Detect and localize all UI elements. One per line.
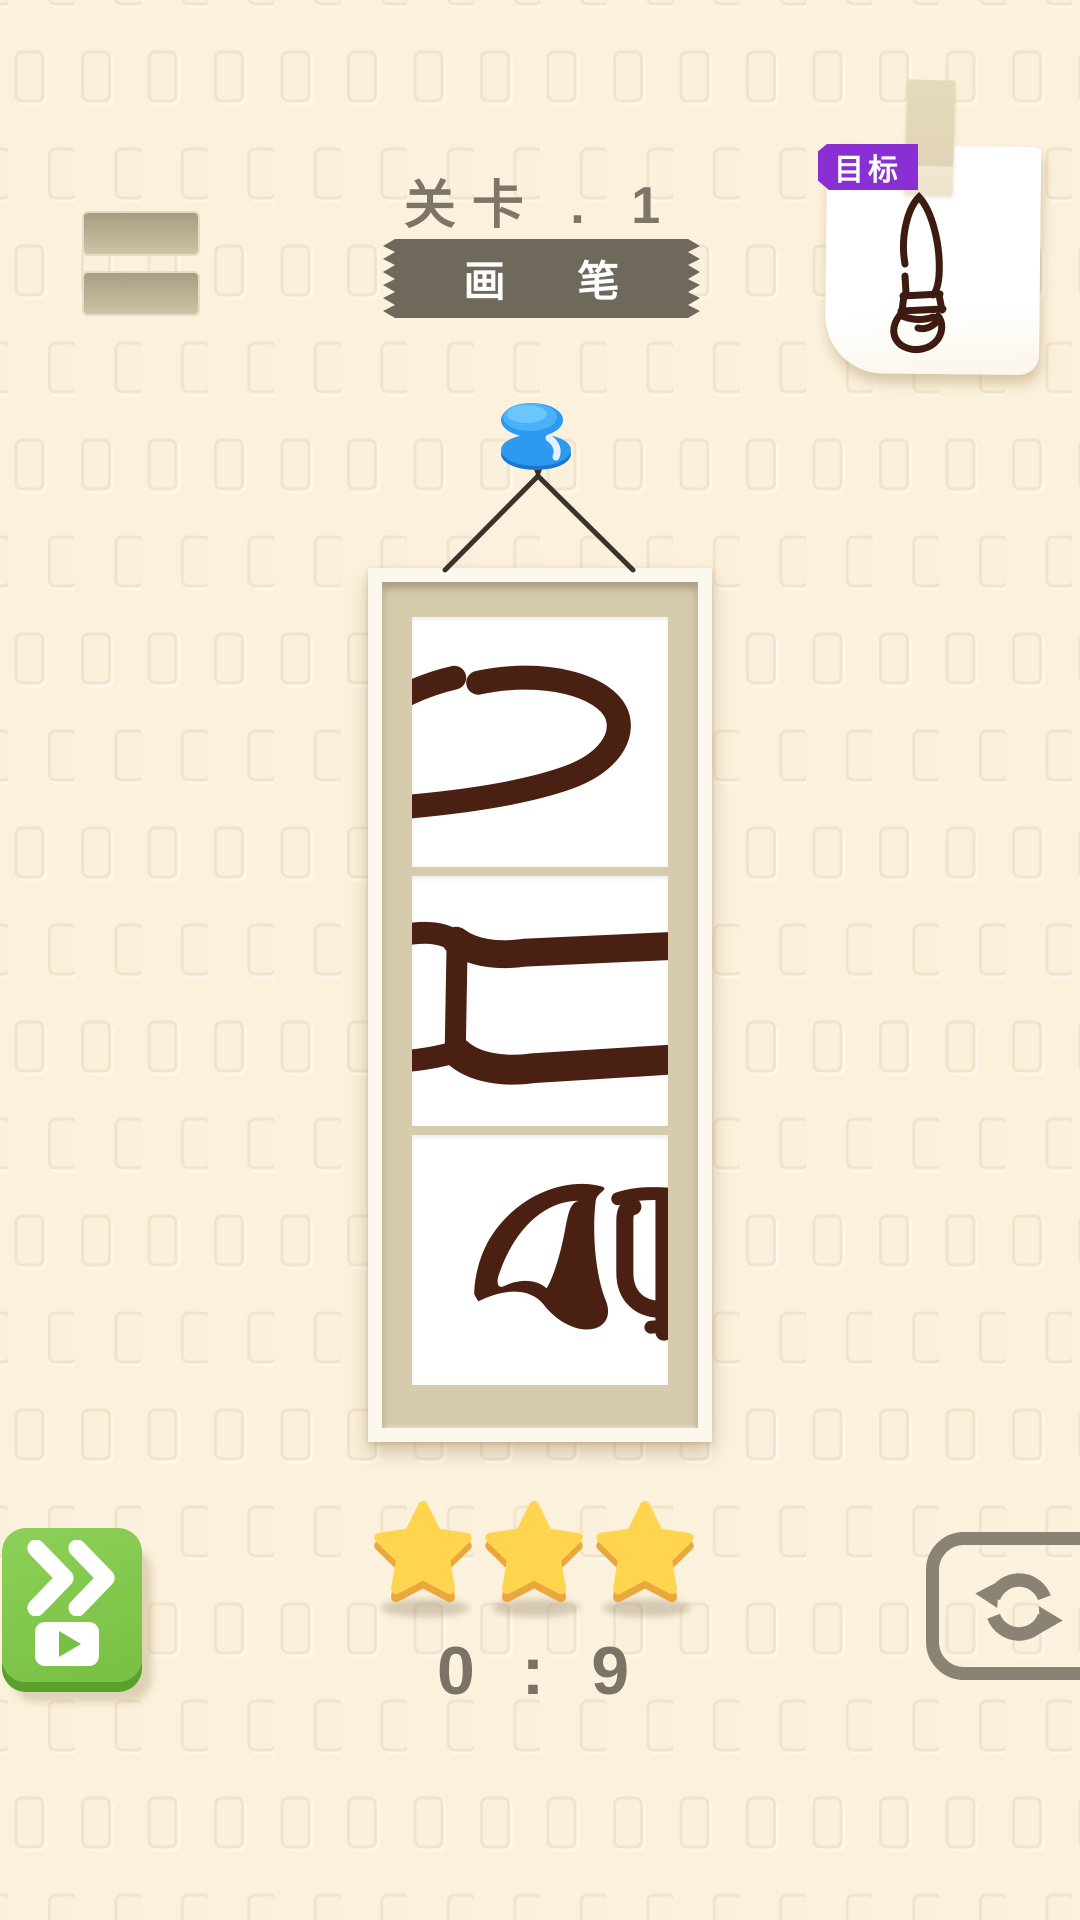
level-name-text: 画 笔	[464, 248, 650, 309]
menu-button[interactable]	[80, 210, 202, 320]
menu-bar-icon	[82, 211, 200, 256]
brush-ferrule-segment-drawing	[412, 876, 668, 1126]
restart-button[interactable]	[926, 1532, 1080, 1680]
target-preview-card[interactable]: 目标	[810, 60, 1060, 390]
stars-rating	[367, 1498, 707, 1623]
puzzle-panel-2-brush-ferrule[interactable]	[412, 876, 668, 1126]
pushpin-and-strings	[350, 398, 730, 583]
puzzle-frame	[368, 568, 712, 1442]
video-play-icon	[35, 1622, 99, 1666]
fast-forward-icon	[16, 1540, 126, 1616]
hanging-strings	[445, 476, 633, 570]
target-badge: 目标	[818, 144, 918, 190]
paintbrush-icon	[888, 188, 980, 358]
level-title: 关卡 . 1	[240, 163, 840, 238]
menu-bar-icon	[82, 271, 200, 316]
star-icon	[379, 1506, 469, 1617]
star-icon	[490, 1506, 580, 1617]
puzzle-panel-3-brush-tip[interactable]	[412, 1135, 668, 1385]
game-screen: 关卡 . 1 画 笔 目标	[0, 0, 1080, 1920]
skip-level-button[interactable]	[2, 1528, 142, 1682]
puzzle-panel-1-brush-body[interactable]	[412, 617, 668, 867]
brush-tip-segment-drawing	[412, 1135, 668, 1385]
pushpin-icon	[501, 403, 571, 480]
timer-display: 0 : 9	[340, 1632, 740, 1710]
star-icon	[601, 1506, 691, 1617]
frame-mat	[382, 582, 698, 1428]
refresh-icon	[967, 1555, 1071, 1659]
puzzle-panels	[412, 617, 668, 1385]
brush-body-segment-drawing	[412, 617, 668, 867]
level-name-ribbon: 画 笔	[383, 239, 700, 318]
target-badge-text: 目标	[834, 145, 902, 189]
